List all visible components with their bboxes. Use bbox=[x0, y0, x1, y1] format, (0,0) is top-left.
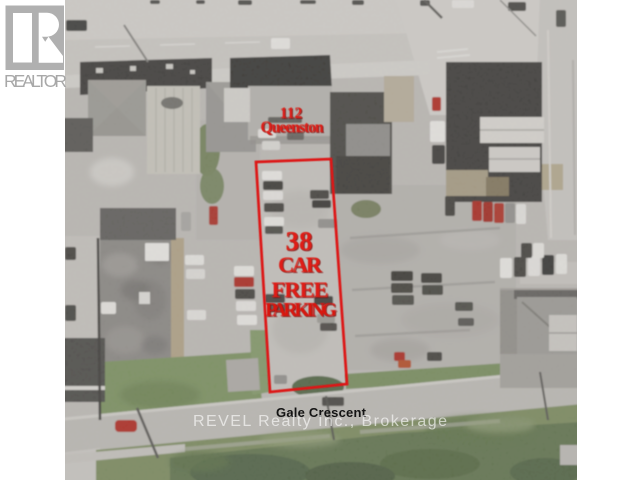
svg-text:PARKING: PARKING bbox=[265, 299, 337, 321]
svg-text:REALTOR: REALTOR bbox=[4, 71, 67, 91]
svg-text:Queenston: Queenston bbox=[261, 119, 324, 136]
svg-text:REVEL Realty Inc., Brokerage: REVEL Realty Inc., Brokerage bbox=[193, 413, 447, 430]
svg-text:CAR: CAR bbox=[278, 252, 323, 277]
